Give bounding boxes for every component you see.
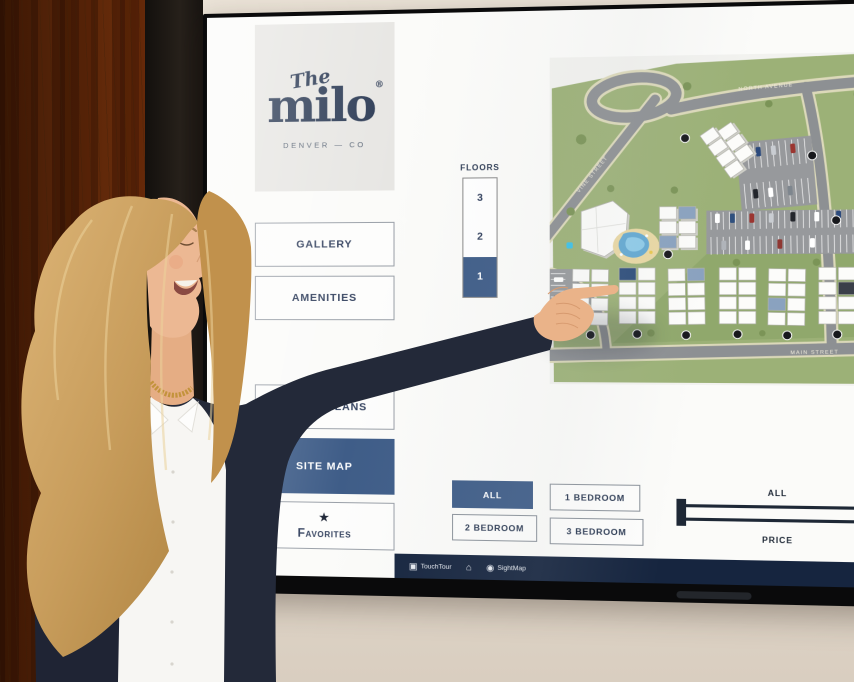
scene: { "colors": { "accent_navy": "#3f5d88", … bbox=[0, 0, 854, 682]
cheek bbox=[169, 255, 183, 269]
presenter-person bbox=[0, 0, 854, 682]
